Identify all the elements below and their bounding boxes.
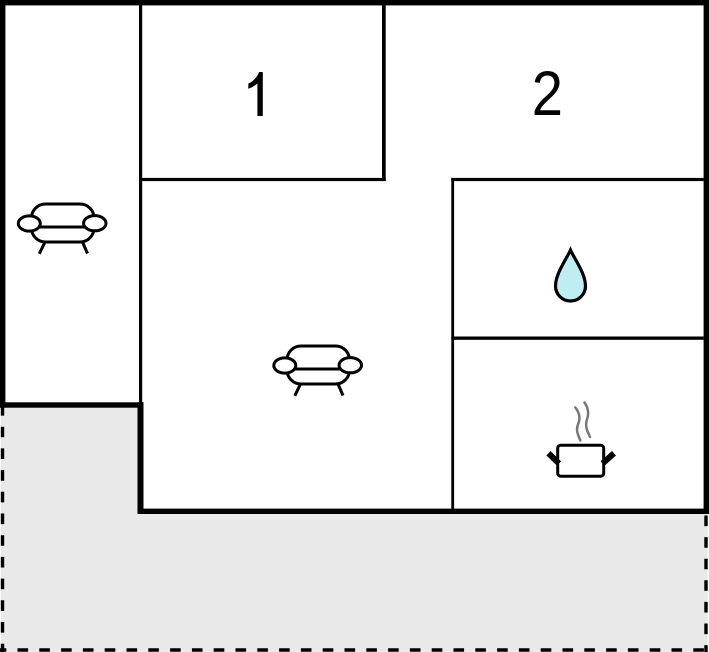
svg-text:2: 2 [532, 58, 563, 129]
